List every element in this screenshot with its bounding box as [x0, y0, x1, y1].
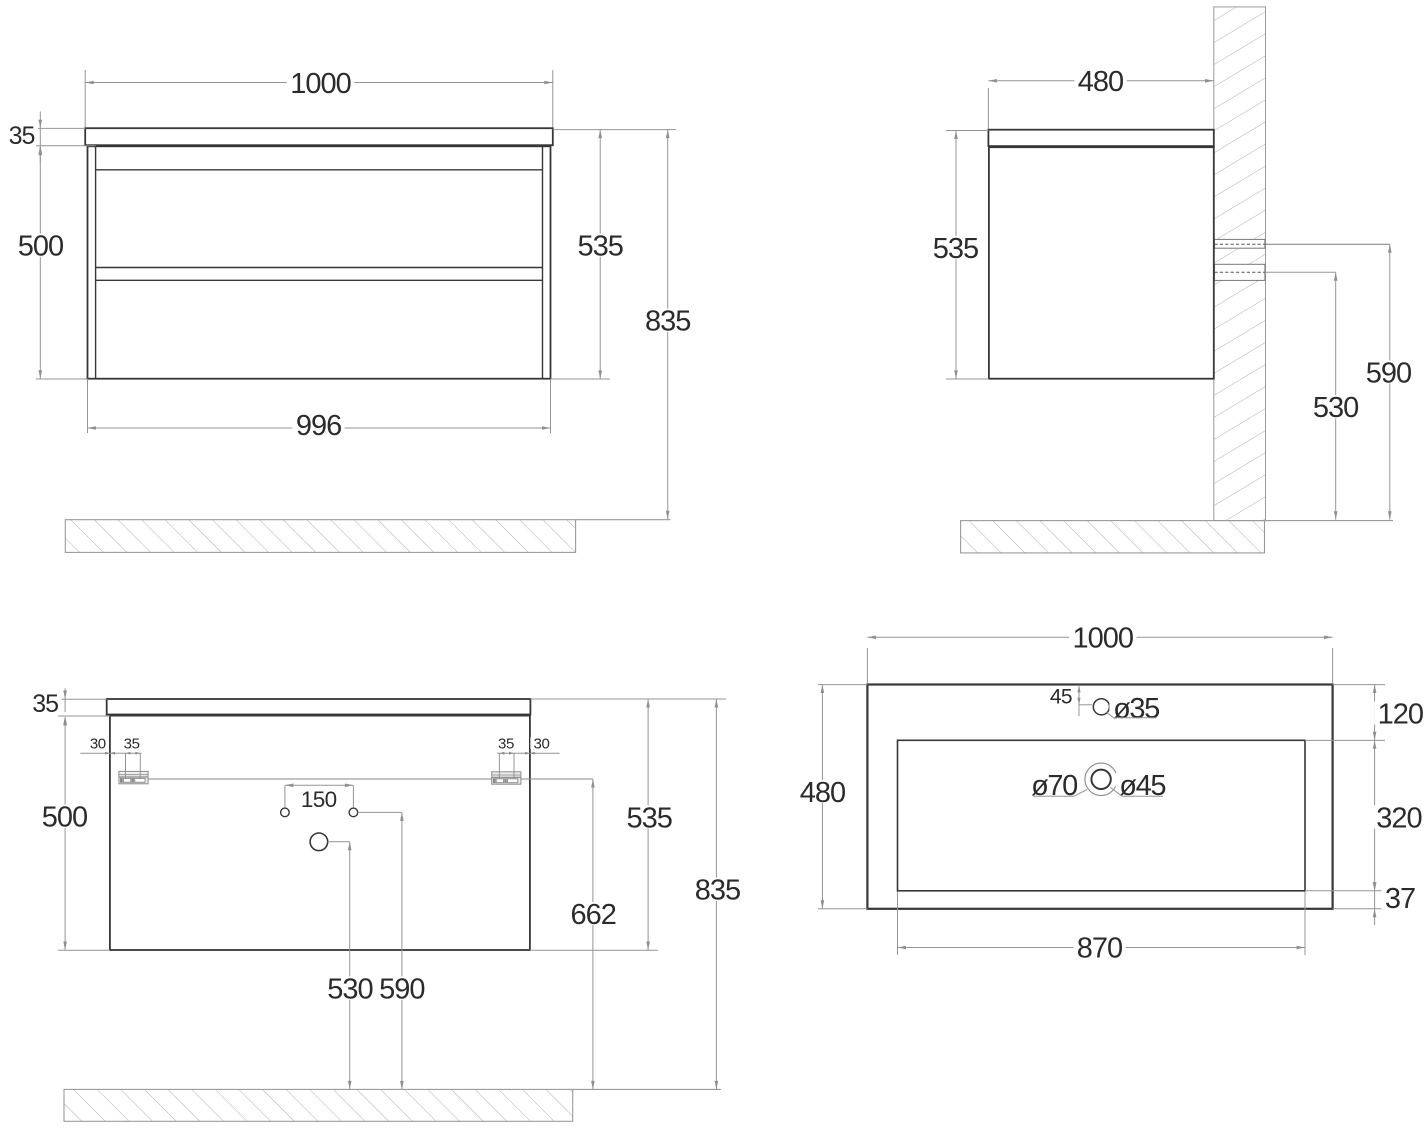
svg-text:480: 480: [800, 777, 845, 809]
svg-text:320: 320: [1376, 802, 1421, 834]
svg-text:500: 500: [42, 802, 87, 834]
svg-text:35: 35: [498, 736, 514, 753]
svg-text:996: 996: [296, 410, 341, 442]
svg-text:535: 535: [933, 233, 978, 265]
svg-text:480: 480: [1078, 66, 1123, 98]
svg-text:530: 530: [327, 974, 372, 1006]
svg-text:1000: 1000: [1073, 623, 1134, 655]
svg-text:37: 37: [1385, 883, 1415, 915]
svg-text:535: 535: [627, 802, 672, 834]
svg-text:ø45: ø45: [1119, 770, 1165, 802]
svg-text:35: 35: [32, 690, 58, 718]
svg-text:500: 500: [18, 231, 63, 263]
svg-text:120: 120: [1378, 698, 1423, 730]
svg-text:45: 45: [1050, 686, 1072, 709]
svg-text:35: 35: [124, 736, 140, 753]
svg-text:530: 530: [1313, 392, 1358, 424]
svg-text:ø70: ø70: [1031, 770, 1077, 802]
svg-text:30: 30: [90, 736, 106, 753]
svg-text:30: 30: [534, 736, 550, 753]
svg-text:ø35: ø35: [1113, 693, 1159, 725]
svg-text:835: 835: [645, 306, 690, 338]
svg-text:590: 590: [379, 974, 424, 1006]
svg-text:1000: 1000: [290, 68, 351, 100]
svg-text:150: 150: [301, 787, 337, 812]
svg-text:590: 590: [1366, 357, 1411, 389]
svg-text:870: 870: [1077, 933, 1122, 965]
svg-text:662: 662: [571, 899, 616, 931]
svg-text:835: 835: [695, 875, 740, 907]
svg-text:35: 35: [9, 122, 35, 150]
svg-text:535: 535: [578, 231, 623, 263]
